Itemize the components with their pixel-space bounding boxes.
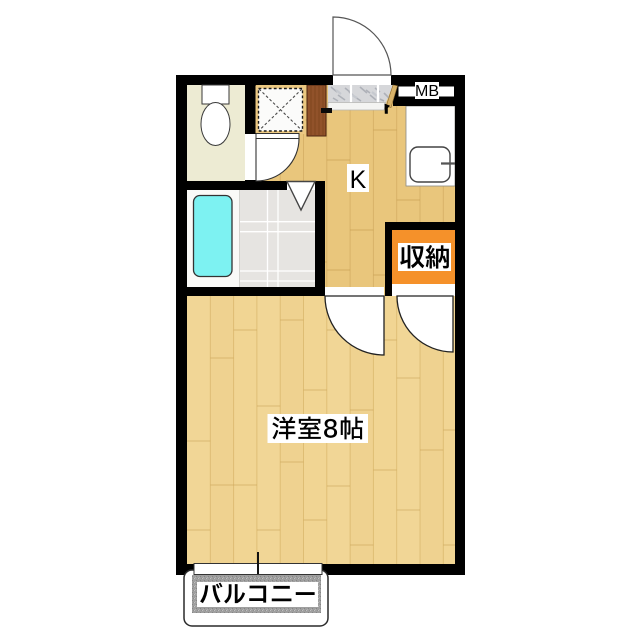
svg-text:K: K (350, 166, 367, 194)
svg-text:MB: MB (415, 83, 439, 100)
